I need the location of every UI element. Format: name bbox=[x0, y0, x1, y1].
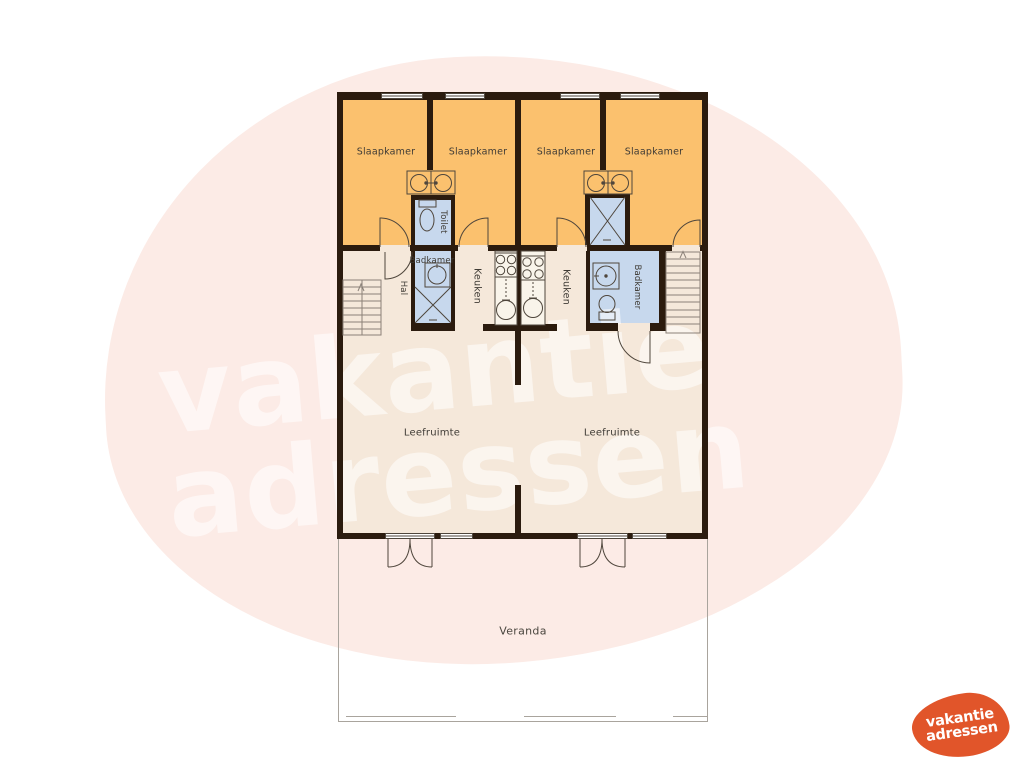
room-label-hal: Hal bbox=[398, 281, 408, 296]
floor-plan-labels: Slaapkamer Slaapkamer Slaapkamer Slaapka… bbox=[337, 92, 708, 539]
veranda-railing bbox=[524, 716, 616, 722]
room-label-leefruimte-right: Leefruimte bbox=[584, 428, 640, 439]
room-label-slaapkamer-1: Slaapkamer bbox=[357, 147, 416, 158]
room-label-keuken-left: Keuken bbox=[472, 268, 483, 304]
floorplan-page: Veranda vakantie adressen bbox=[0, 0, 1024, 768]
room-label-badkamer-left: Badkamer bbox=[409, 256, 454, 266]
room-label-badkamer-right: Badkamer bbox=[632, 264, 642, 309]
room-label-slaapkamer-4: Slaapkamer bbox=[625, 147, 684, 158]
veranda-railing bbox=[346, 716, 456, 722]
room-label-leefruimte-left: Leefruimte bbox=[404, 428, 460, 439]
vakantieadressen-logo: vakantie adressen bbox=[912, 694, 1009, 757]
room-label-keuken-right: Keuken bbox=[561, 269, 572, 305]
room-label-slaapkamer-3: Slaapkamer bbox=[537, 147, 596, 158]
room-label-slaapkamer-2: Slaapkamer bbox=[449, 147, 508, 158]
veranda-railing bbox=[673, 716, 707, 722]
room-label-toilet: Toilet bbox=[438, 210, 448, 233]
veranda-label: Veranda bbox=[499, 625, 547, 638]
veranda-area: Veranda bbox=[338, 539, 708, 722]
